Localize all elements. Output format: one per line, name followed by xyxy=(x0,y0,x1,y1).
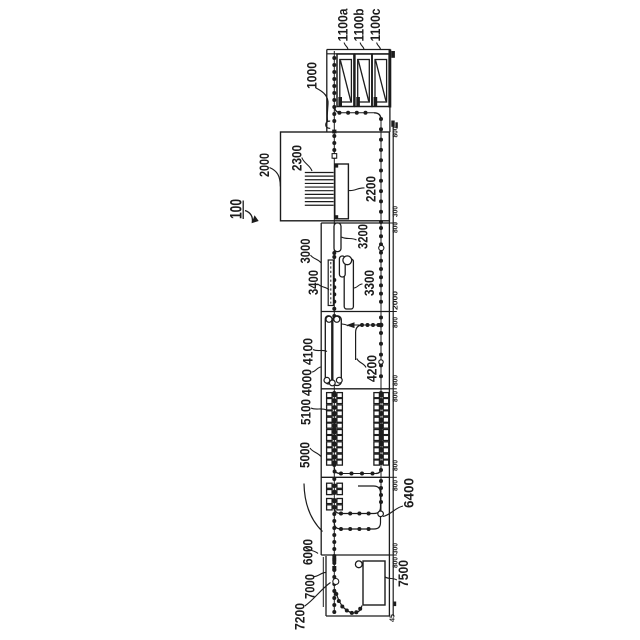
svg-text:5100: 5100 xyxy=(298,399,314,425)
svg-text:6000: 6000 xyxy=(300,539,316,565)
svg-text:2200: 2200 xyxy=(363,176,379,202)
svg-text:2000: 2000 xyxy=(392,291,399,310)
svg-text:5000: 5000 xyxy=(297,442,313,468)
svg-text:800: 800 xyxy=(392,460,399,471)
svg-text:1100b: 1100b xyxy=(351,9,367,42)
svg-text:800: 800 xyxy=(392,391,399,402)
svg-text:1100c: 1100c xyxy=(367,8,383,41)
svg-text:300: 300 xyxy=(392,543,399,554)
svg-text:6400: 6400 xyxy=(401,478,417,508)
svg-text:7200: 7200 xyxy=(292,603,308,630)
svg-text:800: 800 xyxy=(392,126,399,137)
svg-text:45: 45 xyxy=(390,614,397,622)
svg-text:300: 300 xyxy=(392,206,399,217)
svg-text:7000: 7000 xyxy=(302,574,318,599)
svg-text:800: 800 xyxy=(392,375,399,386)
svg-text:800: 800 xyxy=(392,557,399,568)
svg-text:800: 800 xyxy=(392,317,399,328)
svg-text:3200: 3200 xyxy=(355,224,371,249)
svg-text:800: 800 xyxy=(392,480,399,491)
svg-text:3000: 3000 xyxy=(297,238,313,263)
svg-text:800: 800 xyxy=(392,222,399,233)
svg-text:4200: 4200 xyxy=(364,355,380,382)
svg-text:2000: 2000 xyxy=(256,153,272,177)
svg-text:1100a: 1100a xyxy=(335,8,351,41)
svg-text:3400: 3400 xyxy=(305,270,321,295)
svg-text:3300: 3300 xyxy=(361,270,377,296)
svg-text:1000: 1000 xyxy=(304,62,320,89)
svg-text:4100: 4100 xyxy=(300,338,316,365)
svg-text:4000: 4000 xyxy=(299,369,315,396)
